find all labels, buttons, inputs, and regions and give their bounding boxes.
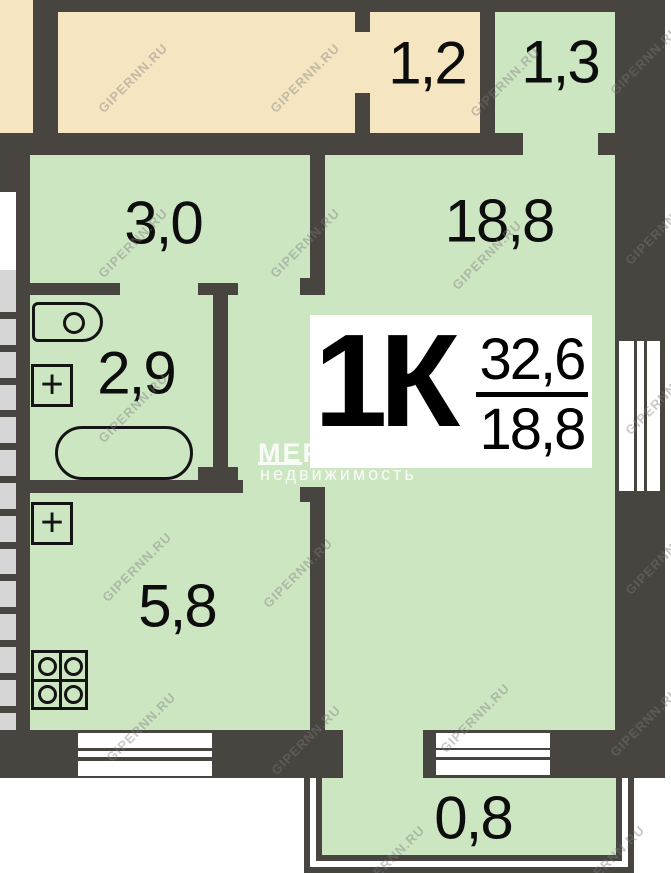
closet-opening [523,133,598,155]
wall-storage-left-upper [355,12,370,32]
stove-icon [31,650,88,710]
burner-icon [64,685,83,704]
stair-tick [0,476,16,483]
living-window-mid [436,750,550,757]
stair-tick [0,378,16,385]
stair-tick [0,443,16,450]
burner-icon [38,657,57,676]
stair-tick [0,345,16,352]
kitchen-window-mid [78,751,212,757]
stair-tick [0,607,16,614]
kitchen-window-inner [78,761,212,776]
burner-icon [38,685,57,704]
wall-closet-stub [598,133,615,155]
stove-grid-line [34,679,85,682]
wall-living-door-jamb-top [300,278,325,295]
sink-plus-icon: + [40,364,63,404]
kitchen-sink-icon: + [31,502,73,545]
apartment-type-label: 1К [314,315,452,447]
total-area-value: 32,6 [476,331,588,389]
toilet-bowl-icon [63,312,85,334]
wall-bathroom-right [213,295,228,467]
living-window-inner [436,760,550,775]
wall-bathroom-t-bottom [198,467,238,480]
stair-tick [0,312,16,319]
stair-tick [0,574,16,581]
wall-bathroom-t-top [198,283,238,295]
bathroom-sink-icon: + [31,364,73,407]
bathtub-icon [55,426,193,480]
area-fraction: 32,6 18,8 [476,331,588,459]
wall-bathroom-top [30,283,120,295]
wall-top [33,0,665,12]
storage-area-label: 1,2 [388,29,465,98]
wall-corridor-divider [33,0,58,133]
toilet-icon [32,302,103,342]
wall-storage-left-lower [355,93,370,133]
stair-tick [0,706,16,713]
wall-left [16,155,30,730]
balcony-area-label: 0,8 [434,784,511,853]
kitchen-window [78,733,212,748]
wall-bathroom-bottom [16,480,243,493]
floor-plan: + + 1,2 1,3 3,0 2,9 5,8 18,8 0,8 МЕРИДИА… [0,0,671,873]
stair-tick [0,640,16,647]
burner-icon [64,657,83,676]
living-area-value: 18,8 [476,401,588,459]
sink-plus-icon: + [40,502,63,542]
wall-main-horizontal [0,133,523,155]
stair-tick [0,673,16,680]
apartment-info-badge: 1К 32,6 18,8 [310,315,592,468]
stair-tick [0,542,16,549]
stair-tick [0,509,16,516]
stairwell-strip [0,270,16,730]
wall-living-door-jamb-bottom [300,487,325,502]
kitchen-area-label: 5,8 [138,572,215,641]
stair-tick [0,410,16,417]
balcony-door-opening [343,730,423,778]
